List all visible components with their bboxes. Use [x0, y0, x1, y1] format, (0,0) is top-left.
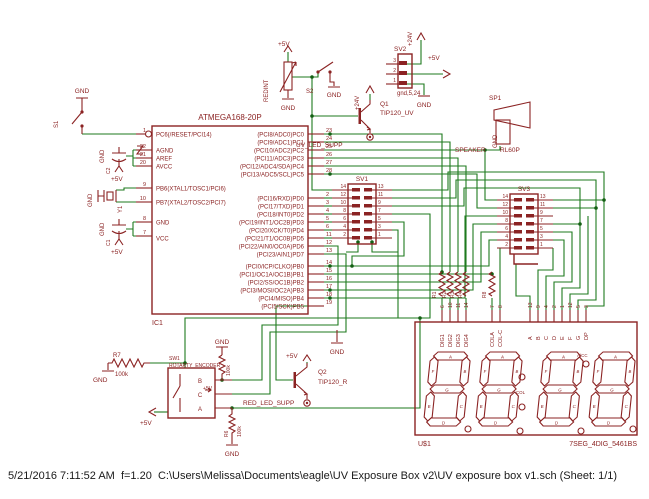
status-bar: 5/21/2016 7:11:52 AM f=1.20 C:\Users\Mel…	[8, 470, 617, 482]
pin-label: VCC	[156, 237, 169, 243]
r8-ref: R8	[482, 291, 488, 298]
gnd-label: GND	[417, 102, 432, 109]
pin-num: 4	[544, 305, 550, 308]
pin-label: (PCI16/RXD)PD0	[257, 197, 304, 203]
pin-num: 2	[505, 242, 508, 248]
resistor-r7[interactable]: R7 GND 100k	[93, 353, 150, 384]
ic-ref: IC1	[152, 320, 163, 327]
pin-num: 3	[326, 200, 329, 206]
seg-label: F	[568, 336, 574, 340]
seg-label: G	[576, 336, 582, 340]
pin-num: 5	[378, 216, 381, 222]
pin-num: 7	[378, 208, 381, 214]
gnd-label: GND	[327, 92, 342, 99]
pin-num: 20	[140, 160, 146, 166]
sv1-title: SV1	[356, 176, 369, 183]
seg-label: DP	[584, 332, 590, 340]
pin-num: 14	[502, 194, 508, 200]
gnd-label: GND	[215, 339, 230, 346]
gnd-label: GND	[330, 349, 345, 356]
acc-dot	[583, 361, 589, 367]
cap-c1[interactable]: GND +5V C1	[100, 219, 126, 256]
pin-num: 13	[326, 248, 332, 254]
speaker-name: SPEAKER	[455, 147, 486, 154]
pin-label: PB6(XTAL1/TOSC1/PCI6)	[156, 187, 226, 193]
dp-dot	[517, 428, 523, 434]
pin-label: AREF	[156, 157, 172, 163]
pin-num: 7	[143, 230, 146, 236]
pin-num: 13	[540, 194, 546, 200]
pin-label: (PCI4/MISO)PB4	[258, 297, 304, 303]
dig-label: DIG1	[440, 334, 446, 347]
pin-num: 6	[326, 224, 329, 230]
plus5-label: +5V	[140, 420, 152, 427]
pin-num: 5	[576, 305, 582, 308]
display-stubs	[442, 310, 586, 322]
dp-dot	[630, 426, 636, 432]
q1-value: TIP120_UV	[380, 110, 414, 117]
speaker-sp1[interactable]: SP1 SPEAKER RL60P GND	[455, 95, 530, 154]
pin-label: (PCI18/INT0)PD2	[257, 213, 305, 219]
pin-label: AVCC	[156, 165, 173, 171]
sv2-value: gnd,5,24	[397, 91, 421, 97]
pin-num: 8	[343, 208, 346, 214]
plus5-arrow-icon	[115, 239, 123, 245]
plus5-label: +5V	[111, 249, 123, 256]
colon-mark: COL	[516, 390, 526, 395]
pin-num: 4	[505, 234, 508, 240]
pin-label: (PCI10/ADC2)PC2	[254, 149, 305, 155]
seg-label: D	[552, 336, 558, 340]
header-sv3[interactable]: SV3 14 13 12 11 10 9 8 7 6 5 4 3 2 1	[497, 186, 553, 264]
dig-label: DIG3	[456, 334, 462, 347]
pin-num: 5	[326, 216, 329, 222]
plus5-label: +5V	[203, 386, 213, 392]
digit-1	[423, 352, 471, 426]
colon-dot-bottom	[519, 404, 525, 410]
ic-right-stubs	[308, 134, 324, 306]
col-label: COLA	[490, 332, 496, 347]
net-label-uv[interactable]: UV_LED_SUPP	[296, 142, 343, 149]
pin-num: 2	[326, 192, 329, 198]
pin-num: 14	[326, 260, 332, 266]
renc-value: 100k	[226, 365, 232, 376]
pin-num: 10	[340, 200, 346, 206]
pin-num: 2	[552, 305, 558, 308]
pin-label: (PCI20/XCK/T0)PD4	[249, 229, 305, 235]
pin-num: 18	[326, 292, 332, 298]
pin-label: (PCI0/ICP/CLKO)PB0	[246, 265, 305, 271]
seg-label: B	[536, 336, 542, 340]
digit-2	[475, 352, 523, 426]
col-label: COL-C	[498, 330, 504, 347]
acc-mark: A/CC	[577, 353, 588, 358]
pin-num: 11	[326, 232, 332, 238]
pin-num: 13	[528, 302, 534, 308]
pin-label: (PCI17/TXD)PD1	[258, 205, 305, 211]
pin-label: (PCI1/OC1A/OC1B)PB1	[239, 273, 304, 279]
q2-value: TIP120_R	[318, 379, 348, 386]
pin-num: 15	[326, 268, 332, 274]
pin-num: 9	[540, 210, 543, 216]
switch-s1[interactable]: GND S1	[54, 88, 90, 134]
pin-num: 13	[378, 184, 384, 190]
pin-num: 22	[140, 144, 146, 150]
pin-num: 9	[378, 200, 381, 206]
status-text: 5/21/2016 7:11:52 AM f=1.20 C:\Users\Mel…	[8, 470, 617, 482]
resistor-ref: R2	[442, 291, 448, 298]
pin-num: 3	[378, 224, 381, 230]
sp1-ref: SP1	[489, 95, 502, 102]
q1-ref: Q1	[380, 101, 389, 108]
pin-num: 12	[340, 192, 346, 198]
pin-label: (PCI22/AIN0/OC0A)PD6	[239, 245, 305, 251]
pin-num: 12	[568, 302, 574, 308]
pin-label: AGND	[156, 149, 174, 155]
net-label-red[interactable]: RED_LED_SUPP	[243, 400, 294, 407]
rotary-encoder-sw1[interactable]: SW1 ROTARTY_ENCODER B C A +5V	[140, 356, 232, 427]
dig-label: DIG4	[464, 334, 470, 347]
pin-label: (PCI23/AIN1)PD7	[257, 253, 305, 259]
pin-num: 2	[343, 232, 346, 238]
pin-label: PB7(XTAL2/TOSC2/PCI7)	[156, 201, 226, 207]
schematic-canvas[interactable]: A B C D E F G	[0, 0, 649, 465]
pin-label: (PCI2/SS/OC1B)PB2	[248, 281, 305, 287]
display-7seg[interactable]: 6 10 11 14 7 8 13 9 4 2 1 12 5 3 DIG1 DI…	[415, 302, 637, 448]
sv2-title: SV2	[394, 46, 407, 53]
pin-num: 21	[140, 152, 146, 158]
digit-4	[588, 352, 636, 426]
pin-label: GND	[156, 221, 170, 227]
pin-num: 6	[505, 226, 508, 232]
pin-num: 11	[540, 202, 545, 208]
seg-label: A	[528, 336, 534, 340]
r6-ref: R6	[224, 430, 230, 437]
gnd-label: GND	[100, 222, 106, 236]
pin-num: 6	[440, 305, 446, 308]
pin-num: 3	[393, 58, 396, 64]
s2-ref: S2	[306, 89, 314, 95]
pin-num: 2	[393, 68, 396, 74]
pin-num: 14	[464, 302, 470, 308]
pin-num: 3	[540, 234, 543, 240]
pin-num: 23	[326, 128, 332, 134]
pin-label: (PCI19/INT1/OC2B)PD3	[239, 221, 305, 227]
pin-num: 4	[326, 208, 329, 214]
pin-label: (PCI12/ADC4/SDA)PC4	[240, 165, 305, 171]
pin-num: 19	[326, 300, 332, 306]
speaker-value: RL60P	[500, 147, 520, 154]
ic-title: ATMEGA168-20P	[198, 113, 261, 122]
switch-s2[interactable]: GND S2	[306, 62, 342, 99]
pin-label: (PCI8/ADC0)PC0	[257, 133, 304, 139]
resistor-r8[interactable]: R8	[482, 272, 495, 298]
pin-num: 5	[540, 226, 543, 232]
resistor-ref: R3	[450, 291, 456, 298]
pin-label: (PCI3/MOSI/OC2A)PB3	[240, 289, 304, 295]
pin-num: 6	[343, 216, 346, 222]
pin-num: 10	[140, 196, 146, 202]
y1-ref: Y1	[118, 205, 124, 213]
pin-num: 1	[540, 242, 543, 248]
pin-label: (PCI11/ADC3)PC3	[254, 157, 304, 163]
pin-num: 12	[502, 202, 508, 208]
pin-num: 10	[448, 302, 454, 308]
pin-num: 3	[584, 305, 590, 308]
plus5-label: +5V	[111, 176, 123, 183]
plus24-label: +24V	[408, 32, 414, 46]
digit-3	[536, 352, 584, 426]
pin-label: (PCI13/ADC5/SCL)PC5	[241, 173, 305, 179]
enc-pin-b: B	[198, 379, 202, 385]
pin-num: 1	[143, 128, 146, 134]
pin-num: 7	[540, 218, 543, 224]
resistor-r6[interactable]: R6 100k GND	[224, 408, 243, 458]
pin-num: 11	[456, 303, 462, 308]
gnd-label: GND	[225, 451, 240, 458]
pin-label: (PCI21/T1/OC0B)PD5	[245, 237, 305, 243]
resistor-group[interactable]: R1 R2 R3 R4	[432, 272, 469, 298]
enc-pin-c: C	[198, 393, 203, 399]
sv3-title: SV3	[518, 186, 531, 193]
pin-num: 27	[326, 160, 332, 166]
resistor-ref: R1	[432, 291, 438, 298]
pin-num: 14	[340, 184, 346, 190]
pin-num: 1	[378, 232, 381, 238]
dig-label: DIG2	[448, 334, 454, 347]
plus5-label: +5V	[428, 55, 440, 62]
pin-num: 9	[143, 182, 146, 188]
pin-num: 9	[536, 305, 542, 308]
gnd-label: GND	[88, 193, 94, 207]
plus5-arrow-icon	[115, 166, 123, 172]
s1-ref: S1	[54, 120, 60, 128]
pin-num: 16	[326, 276, 332, 282]
pin-num: 12	[326, 240, 332, 246]
pin-num: 1	[560, 305, 566, 308]
plus24-arrow-icon	[366, 86, 374, 93]
plus24-arrow-icon	[417, 33, 425, 40]
c1-ref: C1	[106, 239, 112, 246]
gnd-label: GND	[75, 88, 90, 95]
gnd-label: GND	[493, 134, 499, 148]
q2-ref: Q2	[318, 369, 327, 376]
display-ref: U$1	[418, 441, 431, 448]
display-value: 7SEG_4DIG_5461BS	[569, 441, 637, 448]
pin-num: 1	[393, 78, 396, 84]
pin-num: 10	[502, 210, 508, 216]
seg-label: C	[544, 336, 550, 340]
header-sv2[interactable]: SV2 3 2 1 +24V +5V GND gnd,5,24	[386, 32, 450, 109]
pin-num: 17	[326, 284, 332, 290]
pot-name: REDINT	[264, 79, 270, 102]
r7-ref: R7	[113, 353, 121, 359]
plus5-arrow-icon	[443, 70, 450, 78]
resistor-ref: R4	[458, 291, 464, 298]
enc-pin-a: A	[198, 407, 202, 413]
c2-ref: C2	[106, 167, 112, 174]
plus24-label: +24V	[355, 96, 361, 110]
gnd-label: GND	[100, 149, 106, 163]
transistor-q2[interactable]: +5V Q2 TIP120_R	[286, 353, 348, 406]
pin-num: 8	[143, 216, 146, 222]
pin-num: 11	[378, 192, 383, 198]
pin-num: 4	[343, 224, 346, 230]
gnd-symbol	[76, 98, 88, 112]
gnd-label: GND	[93, 377, 108, 384]
gnd-label: GND	[281, 105, 296, 112]
plus5-arrow-icon	[303, 355, 311, 361]
r6-value: 100k	[237, 426, 243, 437]
plus5-label: +5V	[286, 353, 298, 360]
eagle-schematic-page: A B C D E F G	[0, 0, 649, 499]
cap-c2[interactable]: GND +5V C2	[100, 147, 126, 183]
r7-value: 100k	[115, 372, 129, 378]
pin-num: 26	[326, 152, 332, 158]
dp-dot	[465, 426, 471, 432]
pot-redint[interactable]: +5V GND REDINT	[264, 41, 296, 112]
pin-label: PC6(/RESET/PCI14)	[156, 133, 212, 139]
pin-num: 7	[490, 305, 496, 308]
header-sv1[interactable]: SV1 14 13 12 11 10 9 8 7 6 5 4 3 2 1	[332, 176, 392, 244]
pin-num: 8	[498, 305, 504, 308]
gnd-mid: GND	[330, 330, 345, 356]
pin-num: 8	[505, 218, 508, 224]
pin-num: 28	[326, 168, 332, 174]
dp-dot	[578, 428, 584, 434]
pin-label: (PCI5/SCK)PB5	[261, 305, 304, 311]
seg-label: E	[560, 336, 566, 340]
sw1-ref: SW1	[169, 356, 180, 362]
